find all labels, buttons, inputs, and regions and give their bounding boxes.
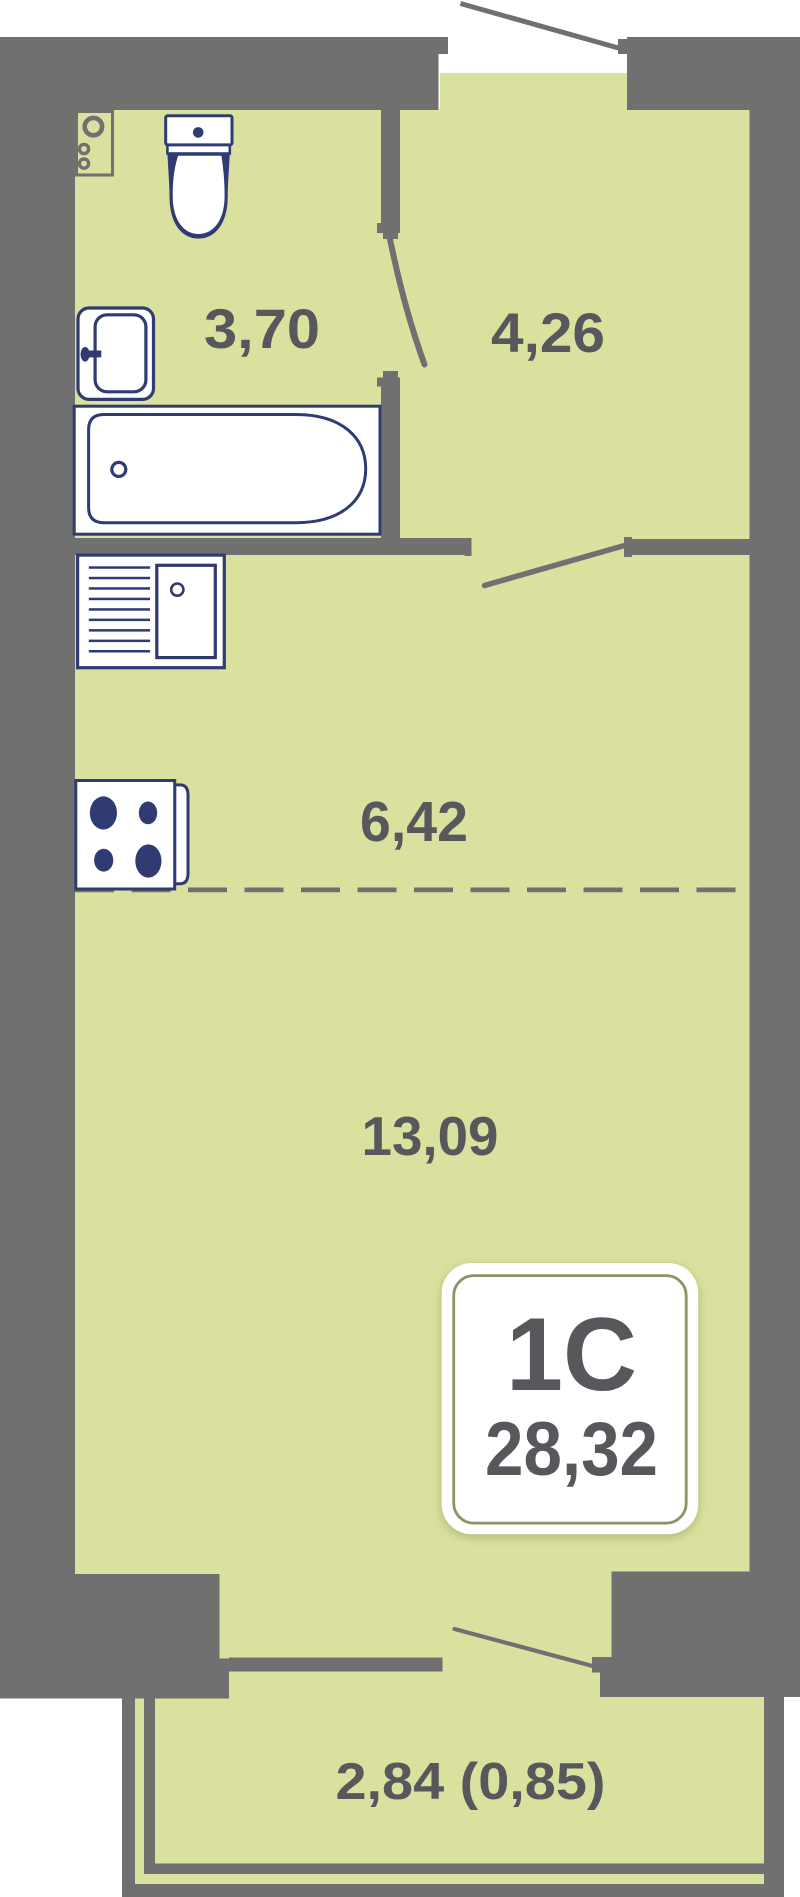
svg-text:4,26: 4,26 bbox=[491, 301, 605, 364]
svg-text:3,70: 3,70 bbox=[204, 297, 320, 360]
svg-text:1C: 1C bbox=[506, 1297, 637, 1413]
svg-text:6,42: 6,42 bbox=[360, 790, 468, 854]
svg-text:13,09: 13,09 bbox=[362, 1105, 499, 1167]
svg-text:2,84 (0,85): 2,84 (0,85) bbox=[336, 1753, 606, 1811]
svg-text:28,32: 28,32 bbox=[485, 1407, 658, 1492]
